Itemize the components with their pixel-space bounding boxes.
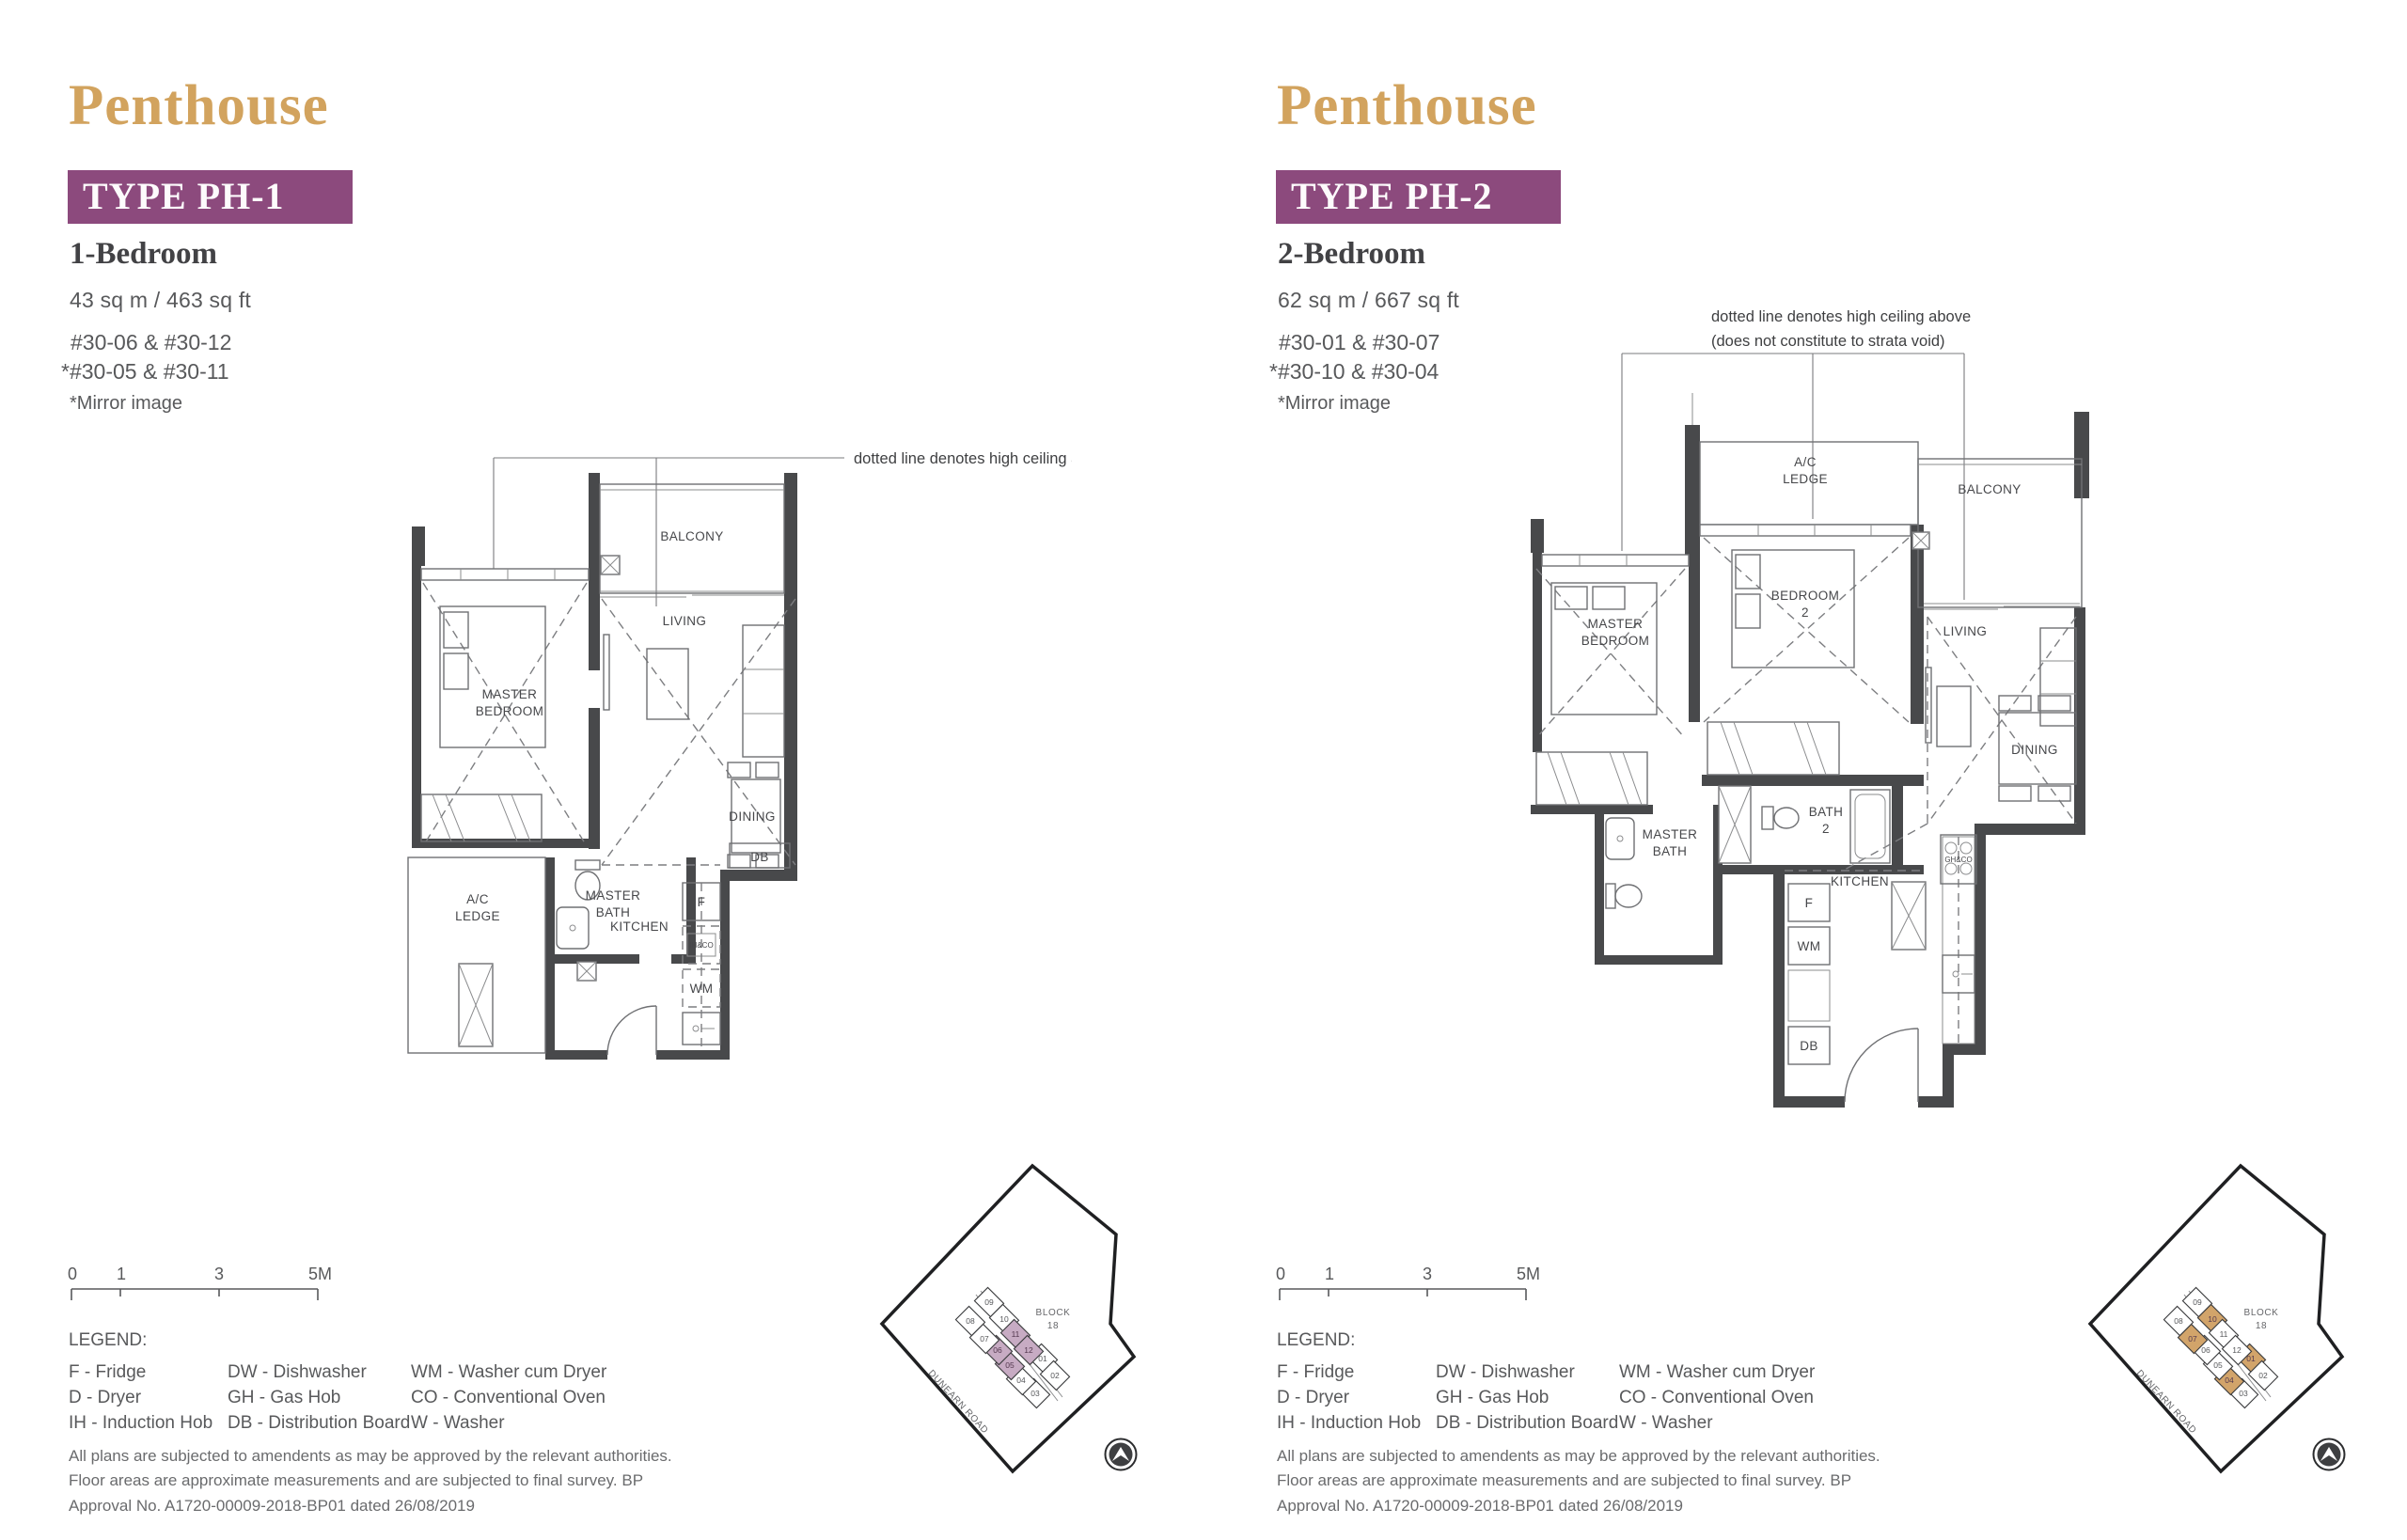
floor-plan-ph2: dotted line denotes high ceiling above (…: [1523, 273, 2219, 1147]
room-label-master-bath: BATH: [596, 905, 631, 919]
bedroom-label: 2-Bedroom: [1278, 237, 1425, 272]
ac-ledge-outline: [408, 857, 545, 1053]
scale-tick-1: 1: [1325, 1265, 1334, 1283]
legend-item: F - Fridge: [69, 1359, 228, 1385]
bath-sink: [557, 907, 589, 949]
area-label: 43 sq m / 463 sq ft: [70, 288, 251, 313]
svg-text:05: 05: [2213, 1360, 2223, 1370]
room-label-living: LIVING: [1943, 624, 1988, 638]
svg-text:08: 08: [966, 1316, 975, 1326]
bedroom2-bed: [1732, 550, 1854, 668]
label-fridge: F: [698, 895, 706, 909]
high-ceiling-note: dotted line denotes high ceiling above: [1711, 308, 1971, 325]
legend-item: F - Fridge: [1277, 1359, 1436, 1385]
legend-item: WM - Washer cum Dryer: [1619, 1359, 1815, 1385]
room-label-master-bath: BATH: [1653, 844, 1688, 858]
room-label-ac-ledge: A/C: [466, 892, 489, 906]
svg-text:12: 12: [1024, 1345, 1033, 1355]
svg-text:07: 07: [980, 1334, 989, 1344]
master-bed: [1551, 583, 1657, 715]
site-map: 010203040506070809101112 BLOCK 18 DUNEAR…: [2073, 1152, 2374, 1490]
legend: LEGEND: F - Fridge D - Dryer IH - Induct…: [69, 1330, 606, 1436]
legend-item: WM - Washer cum Dryer: [411, 1359, 606, 1385]
entry-door: [1845, 1029, 1918, 1102]
svg-text:06: 06: [993, 1345, 1002, 1355]
label-washer: WM: [690, 982, 714, 996]
disclaimer: All plans are subjected to amendents as …: [69, 1444, 708, 1518]
label-fridge: F: [1805, 896, 1814, 910]
page-title: Penthouse: [69, 73, 329, 139]
legend-item: DB - Distribution Board: [228, 1410, 411, 1436]
room-label-bedroom2: 2: [1801, 605, 1809, 620]
unit-numbers-line1: #30-01 & #30-07: [1269, 328, 1439, 357]
room-label-kitchen: KITCHEN: [1831, 874, 1889, 888]
svg-text:08: 08: [2174, 1316, 2183, 1326]
block-number: 18: [1047, 1321, 1059, 1331]
room-label-dining: DINING: [2011, 743, 2058, 757]
page-title: Penthouse: [1277, 73, 1537, 139]
high-ceiling-note: dotted line denotes high ceiling above: [854, 450, 1072, 467]
wardrobes: [1536, 722, 1839, 805]
legend-item: DB - Distribution Board: [1436, 1410, 1619, 1436]
brochure-page: Penthouse TYPE PH-1 1-Bedroom 43 sq m / …: [0, 0, 2407, 1540]
scale-tick-3: 3: [214, 1265, 224, 1283]
type-badge: TYPE PH-1: [68, 170, 353, 224]
compass-icon: [1106, 1439, 1137, 1470]
room-label-balcony: BALCONY: [1958, 482, 2021, 496]
room-label-bath2: BATH: [1809, 805, 1844, 819]
room-label-balcony: BALCONY: [660, 529, 723, 543]
room-label-living: LIVING: [663, 614, 707, 628]
svg-text:06: 06: [2201, 1345, 2210, 1355]
svg-text:05: 05: [1005, 1360, 1015, 1370]
room-label-ac-ledge: LEDGE: [455, 909, 500, 923]
room-label-master-bedroom: BEDROOM: [476, 704, 544, 718]
tv-console: [1926, 668, 1931, 743]
wardrobe: [421, 794, 542, 841]
legend-title: LEGEND:: [69, 1330, 606, 1351]
block-label: BLOCK: [1036, 1308, 1071, 1318]
window-band: [421, 569, 589, 580]
coffee-table: [647, 649, 688, 719]
label-db: DB: [1800, 1039, 1818, 1053]
unit-numbers: #30-01 & #30-07 *#30-10 & #30-04: [1269, 328, 1439, 386]
coffee-table: [1937, 686, 1971, 746]
mirror-note: *Mirror image: [70, 393, 182, 415]
entry-door: [607, 1006, 656, 1055]
area-label: 62 sq m / 667 sq ft: [1278, 288, 1459, 313]
scale-tick-1: 1: [117, 1265, 126, 1283]
type-badge: TYPE PH-2: [1276, 170, 1561, 224]
room-label-master-bedroom: BEDROOM: [1581, 634, 1650, 648]
legend: LEGEND: F - Fridge D - Dryer IH - Induct…: [1277, 1330, 1815, 1436]
sink-box: [1943, 955, 1974, 993]
room-label-master-bath: MASTER: [586, 888, 641, 903]
svg-text:09: 09: [2193, 1297, 2202, 1307]
svg-text:11: 11: [1012, 1329, 1020, 1339]
legend-item: GH - Gas Hob: [1436, 1385, 1619, 1410]
svg-text:07: 07: [2188, 1334, 2197, 1344]
sofa: [743, 625, 784, 757]
sliding-door: [1924, 604, 2080, 609]
svg-text:09: 09: [984, 1297, 994, 1307]
scale-bar: 0 1 3 5M: [1274, 1265, 1556, 1306]
svg-text:03: 03: [1030, 1389, 1040, 1398]
svg-text:03: 03: [2239, 1389, 2248, 1398]
room-label-ac-ledge: LEDGE: [1783, 472, 1828, 486]
legend-item: W - Washer: [411, 1410, 606, 1436]
label-hob: GH&CO: [1944, 856, 1972, 864]
unit-numbers-line2: *#30-10 & #30-04: [1269, 357, 1439, 386]
scale-tick-0: 0: [1276, 1265, 1285, 1283]
legend-item: D - Dryer: [69, 1385, 228, 1410]
room-label-bedroom2: BEDROOM: [1771, 589, 1840, 603]
block-label: BLOCK: [2244, 1308, 2279, 1318]
sliding-door: [600, 591, 784, 597]
label-washer: WM: [1798, 939, 1821, 953]
walls: [1531, 412, 2089, 1108]
room-label-master-bedroom: MASTER: [482, 687, 538, 701]
room-label-master-bath: MASTER: [1643, 827, 1698, 841]
room-label-master-bedroom: MASTER: [1588, 617, 1644, 631]
legend-item: IH - Induction Hob: [1277, 1410, 1436, 1436]
legend-item: DW - Dishwasher: [1436, 1359, 1619, 1385]
scale-tick-5m: 5M: [1517, 1265, 1540, 1283]
legend-item: W - Washer: [1619, 1410, 1815, 1436]
scale-tick-3: 3: [1423, 1265, 1432, 1283]
disclaimer: All plans are subjected to amendents as …: [1277, 1444, 1916, 1518]
svg-text:11: 11: [2220, 1329, 2228, 1339]
unit-numbers: #30-06 & #30-12 *#30-05 & #30-11: [61, 328, 231, 386]
legend-item: IH - Induction Hob: [69, 1410, 228, 1436]
legend-item: GH - Gas Hob: [228, 1385, 411, 1410]
master-bath-fixtures: [1606, 818, 1642, 908]
balcony-outline: [1918, 459, 2082, 607]
scale-bar: 0 1 3 5M: [66, 1265, 348, 1306]
legend-item: CO - Conventional Oven: [411, 1385, 606, 1410]
room-label-db: DB: [750, 850, 769, 864]
scale-tick-0: 0: [68, 1265, 77, 1283]
svg-text:02: 02: [2258, 1371, 2268, 1380]
legend-item: CO - Conventional Oven: [1619, 1385, 1815, 1410]
svg-text:02: 02: [1050, 1371, 1060, 1380]
legend-item: DW - Dishwasher: [228, 1359, 411, 1385]
scale-tick-5m: 5M: [308, 1265, 332, 1283]
svg-text:04: 04: [1016, 1375, 1026, 1385]
unit-numbers-line1: #30-06 & #30-12: [61, 328, 231, 357]
svg-text:12: 12: [2232, 1345, 2242, 1355]
legend-title: LEGEND:: [1277, 1330, 1815, 1351]
room-label-ac-ledge: A/C: [1794, 455, 1817, 469]
site-map: 010203040506070809101112 BLOCK 18 DUNEAR…: [865, 1152, 1166, 1490]
svg-text:10: 10: [999, 1314, 1009, 1324]
floor-plan-ph1: dotted line denotes high ceiling above: [404, 437, 1072, 1095]
svg-text:10: 10: [2208, 1314, 2217, 1324]
room-label-dining: DINING: [729, 809, 776, 824]
label-hob: IH&CO: [689, 941, 713, 950]
block-number: 18: [2256, 1321, 2267, 1331]
high-ceiling-note: (does not constitute to strata void): [1711, 333, 1945, 350]
bedroom-label: 1-Bedroom: [70, 237, 217, 272]
bed: [440, 606, 545, 747]
mirror-note: *Mirror image: [1278, 393, 1391, 415]
unit-numbers-line2: *#30-05 & #30-11: [61, 357, 231, 386]
tv-console: [604, 635, 609, 710]
compass-icon: [2314, 1439, 2345, 1470]
room-label-kitchen: KITCHEN: [610, 919, 669, 934]
legend-item: D - Dryer: [1277, 1385, 1436, 1410]
room-label-bath2: 2: [1822, 822, 1830, 836]
svg-text:04: 04: [2225, 1375, 2234, 1385]
window-band: [1542, 525, 1911, 566]
